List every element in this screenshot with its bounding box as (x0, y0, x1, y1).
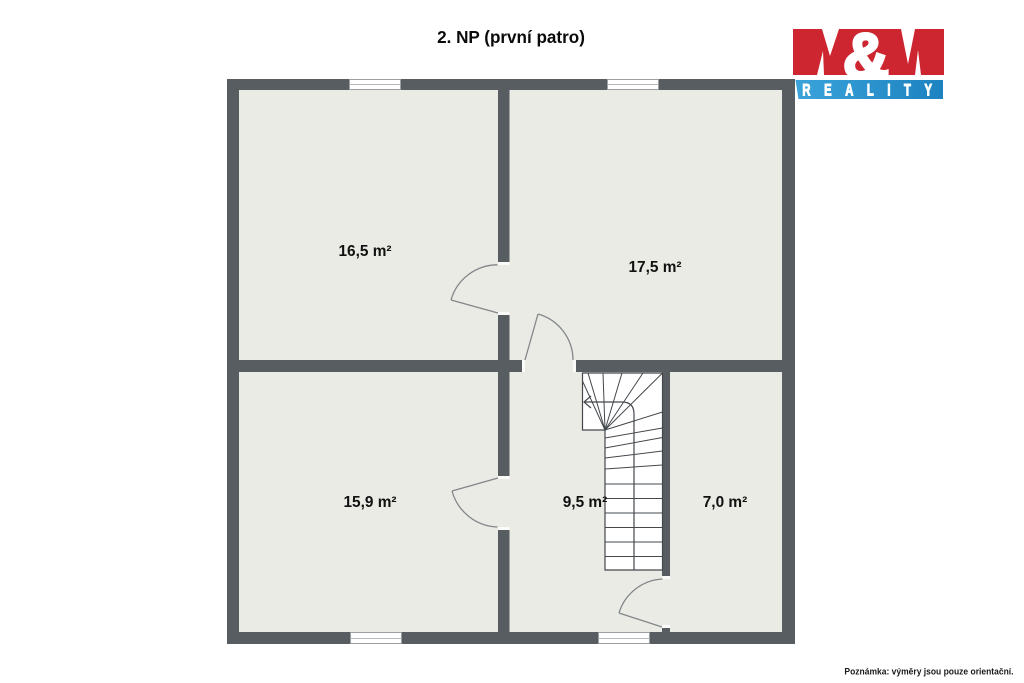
svg-text:17,5 m²: 17,5 m² (628, 259, 681, 276)
svg-text:7,0 m²: 7,0 m² (703, 494, 747, 511)
svg-text:9,5 m²: 9,5 m² (563, 494, 607, 511)
svg-text:16,5 m²: 16,5 m² (338, 243, 391, 260)
svg-text:Poznámka: výměry jsou pouze or: Poznámka: výměry jsou pouze orientační. (844, 666, 1013, 676)
svg-text:REALITY: REALITY (802, 80, 945, 99)
svg-text:2. NP (první patro): 2. NP (první patro) (437, 28, 585, 47)
svg-text:15,9 m²: 15,9 m² (343, 494, 396, 511)
